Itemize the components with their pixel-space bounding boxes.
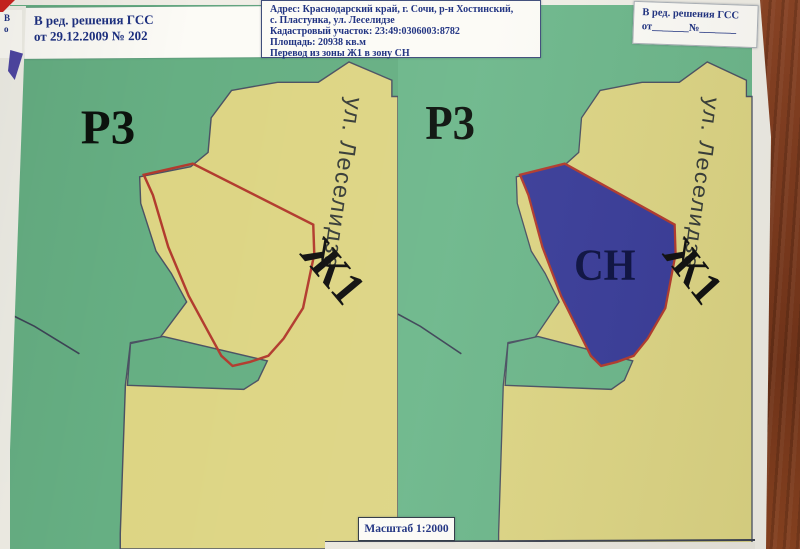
edit-note-left-line1: В ред. решения ГСС (34, 11, 267, 29)
underlay-fragment-line1: В (4, 13, 22, 24)
address-block: Адрес: Краснодарский край, г. Сочи, р-н … (261, 0, 541, 58)
page-bottom-margin (325, 542, 755, 549)
edit-note-right: В ред. решения ГСС от_______№_______ (632, 1, 758, 48)
map-before-canvas: Р3 ул. Леселидзе Ж1 (10, 5, 398, 549)
zone-label-p3: Р3 (81, 99, 135, 154)
zone-label-cn: СН (574, 241, 635, 290)
address-line: Кадастровый участок: 23:49:0306003:8782 (270, 26, 540, 37)
scale-box: Масштаб 1:2000 (358, 517, 455, 541)
edit-note-left: В ред. решения ГСС от 29.12.2009 № 202 (24, 6, 267, 59)
photo-background-wooden-table: Р3 ул. Леселидзе Ж1 Р3 ул. Леселидзе Ж1 … (0, 0, 800, 549)
address-line: Площадь: 20938 кв.м (270, 37, 540, 48)
address-line: Перевод из зоны Ж1 в зону СН (270, 48, 540, 59)
document-page: Р3 ул. Леселидзе Ж1 Р3 ул. Леселидзе Ж1 … (0, 0, 800, 549)
scale-label: Масштаб 1:2000 (364, 523, 448, 535)
zone-label-p3: Р3 (425, 96, 475, 150)
address-line: с. Пластунка, ул. Леселидзе (270, 15, 540, 26)
edit-note-left-line2: от 29.12.2009 № 202 (34, 27, 267, 45)
underlay-fragment-line2: о (4, 24, 22, 35)
address-line: Адрес: Краснодарский край, г. Сочи, р-н … (270, 4, 540, 15)
map-after-canvas: Р3 ул. Леселидзе Ж1 СН (398, 5, 752, 549)
edit-note-right-line2: от_______№_______ (642, 20, 757, 38)
underlying-page-blue-zone-fragment (8, 50, 23, 80)
map-panel-after: Р3 ул. Леселидзе Ж1 СН (398, 5, 752, 549)
map-panel-before: Р3 ул. Леселидзе Ж1 (10, 5, 398, 549)
